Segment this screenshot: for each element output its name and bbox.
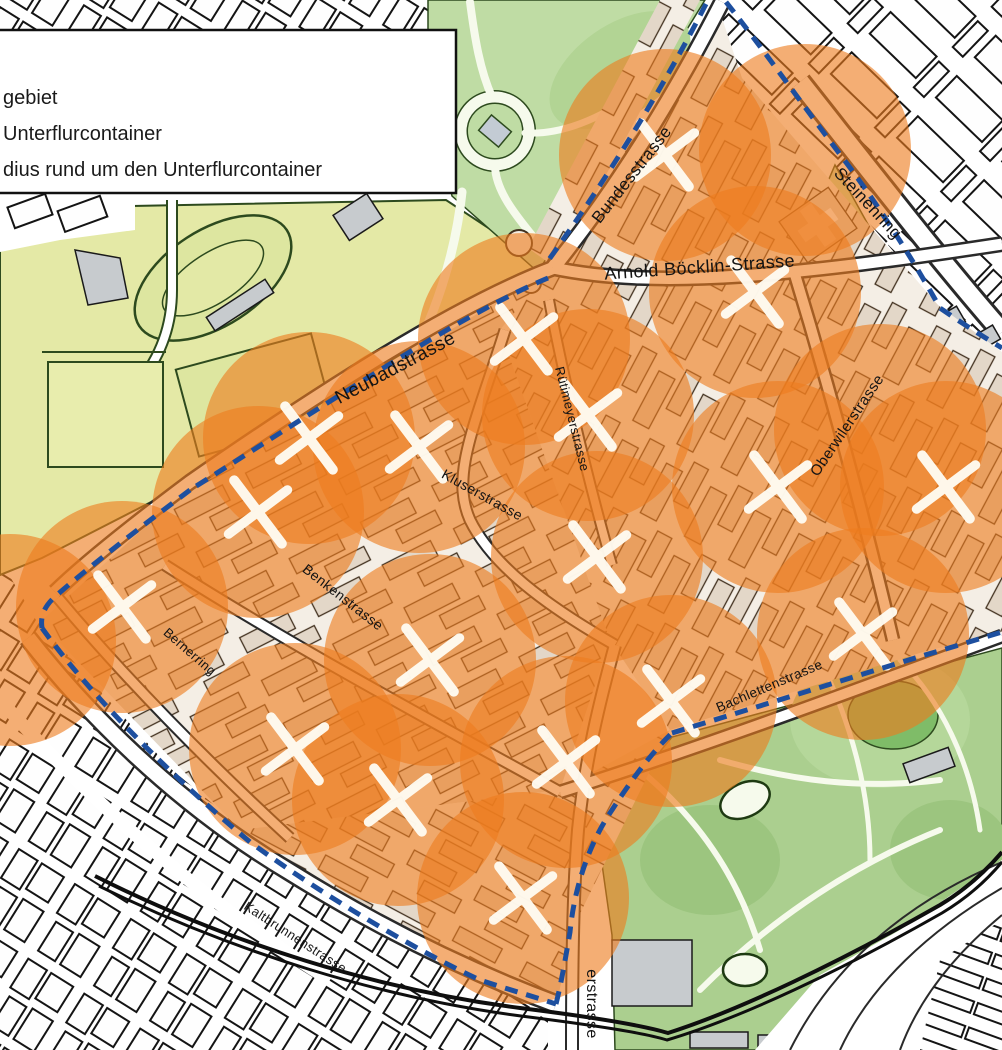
- district-top-left-strip: [0, 0, 465, 32]
- street-label-wanderstrasse-partial: erstrasse: [583, 969, 600, 1038]
- legend-item-perimeter-area: gebiet: [3, 87, 58, 109]
- legend-item-unterflurcontainer: Unterflurcontainer: [3, 123, 162, 145]
- legend: gebietUnterflurcontainerdius rund um den…: [0, 30, 456, 193]
- gray-building-wanderstrasse: [612, 940, 692, 1006]
- city-map: BundesstrasseArnold Böcklin-StrasseStein…: [0, 0, 1002, 1050]
- legend-item-radius: dius rund um den Unterflurcontainer: [3, 159, 322, 181]
